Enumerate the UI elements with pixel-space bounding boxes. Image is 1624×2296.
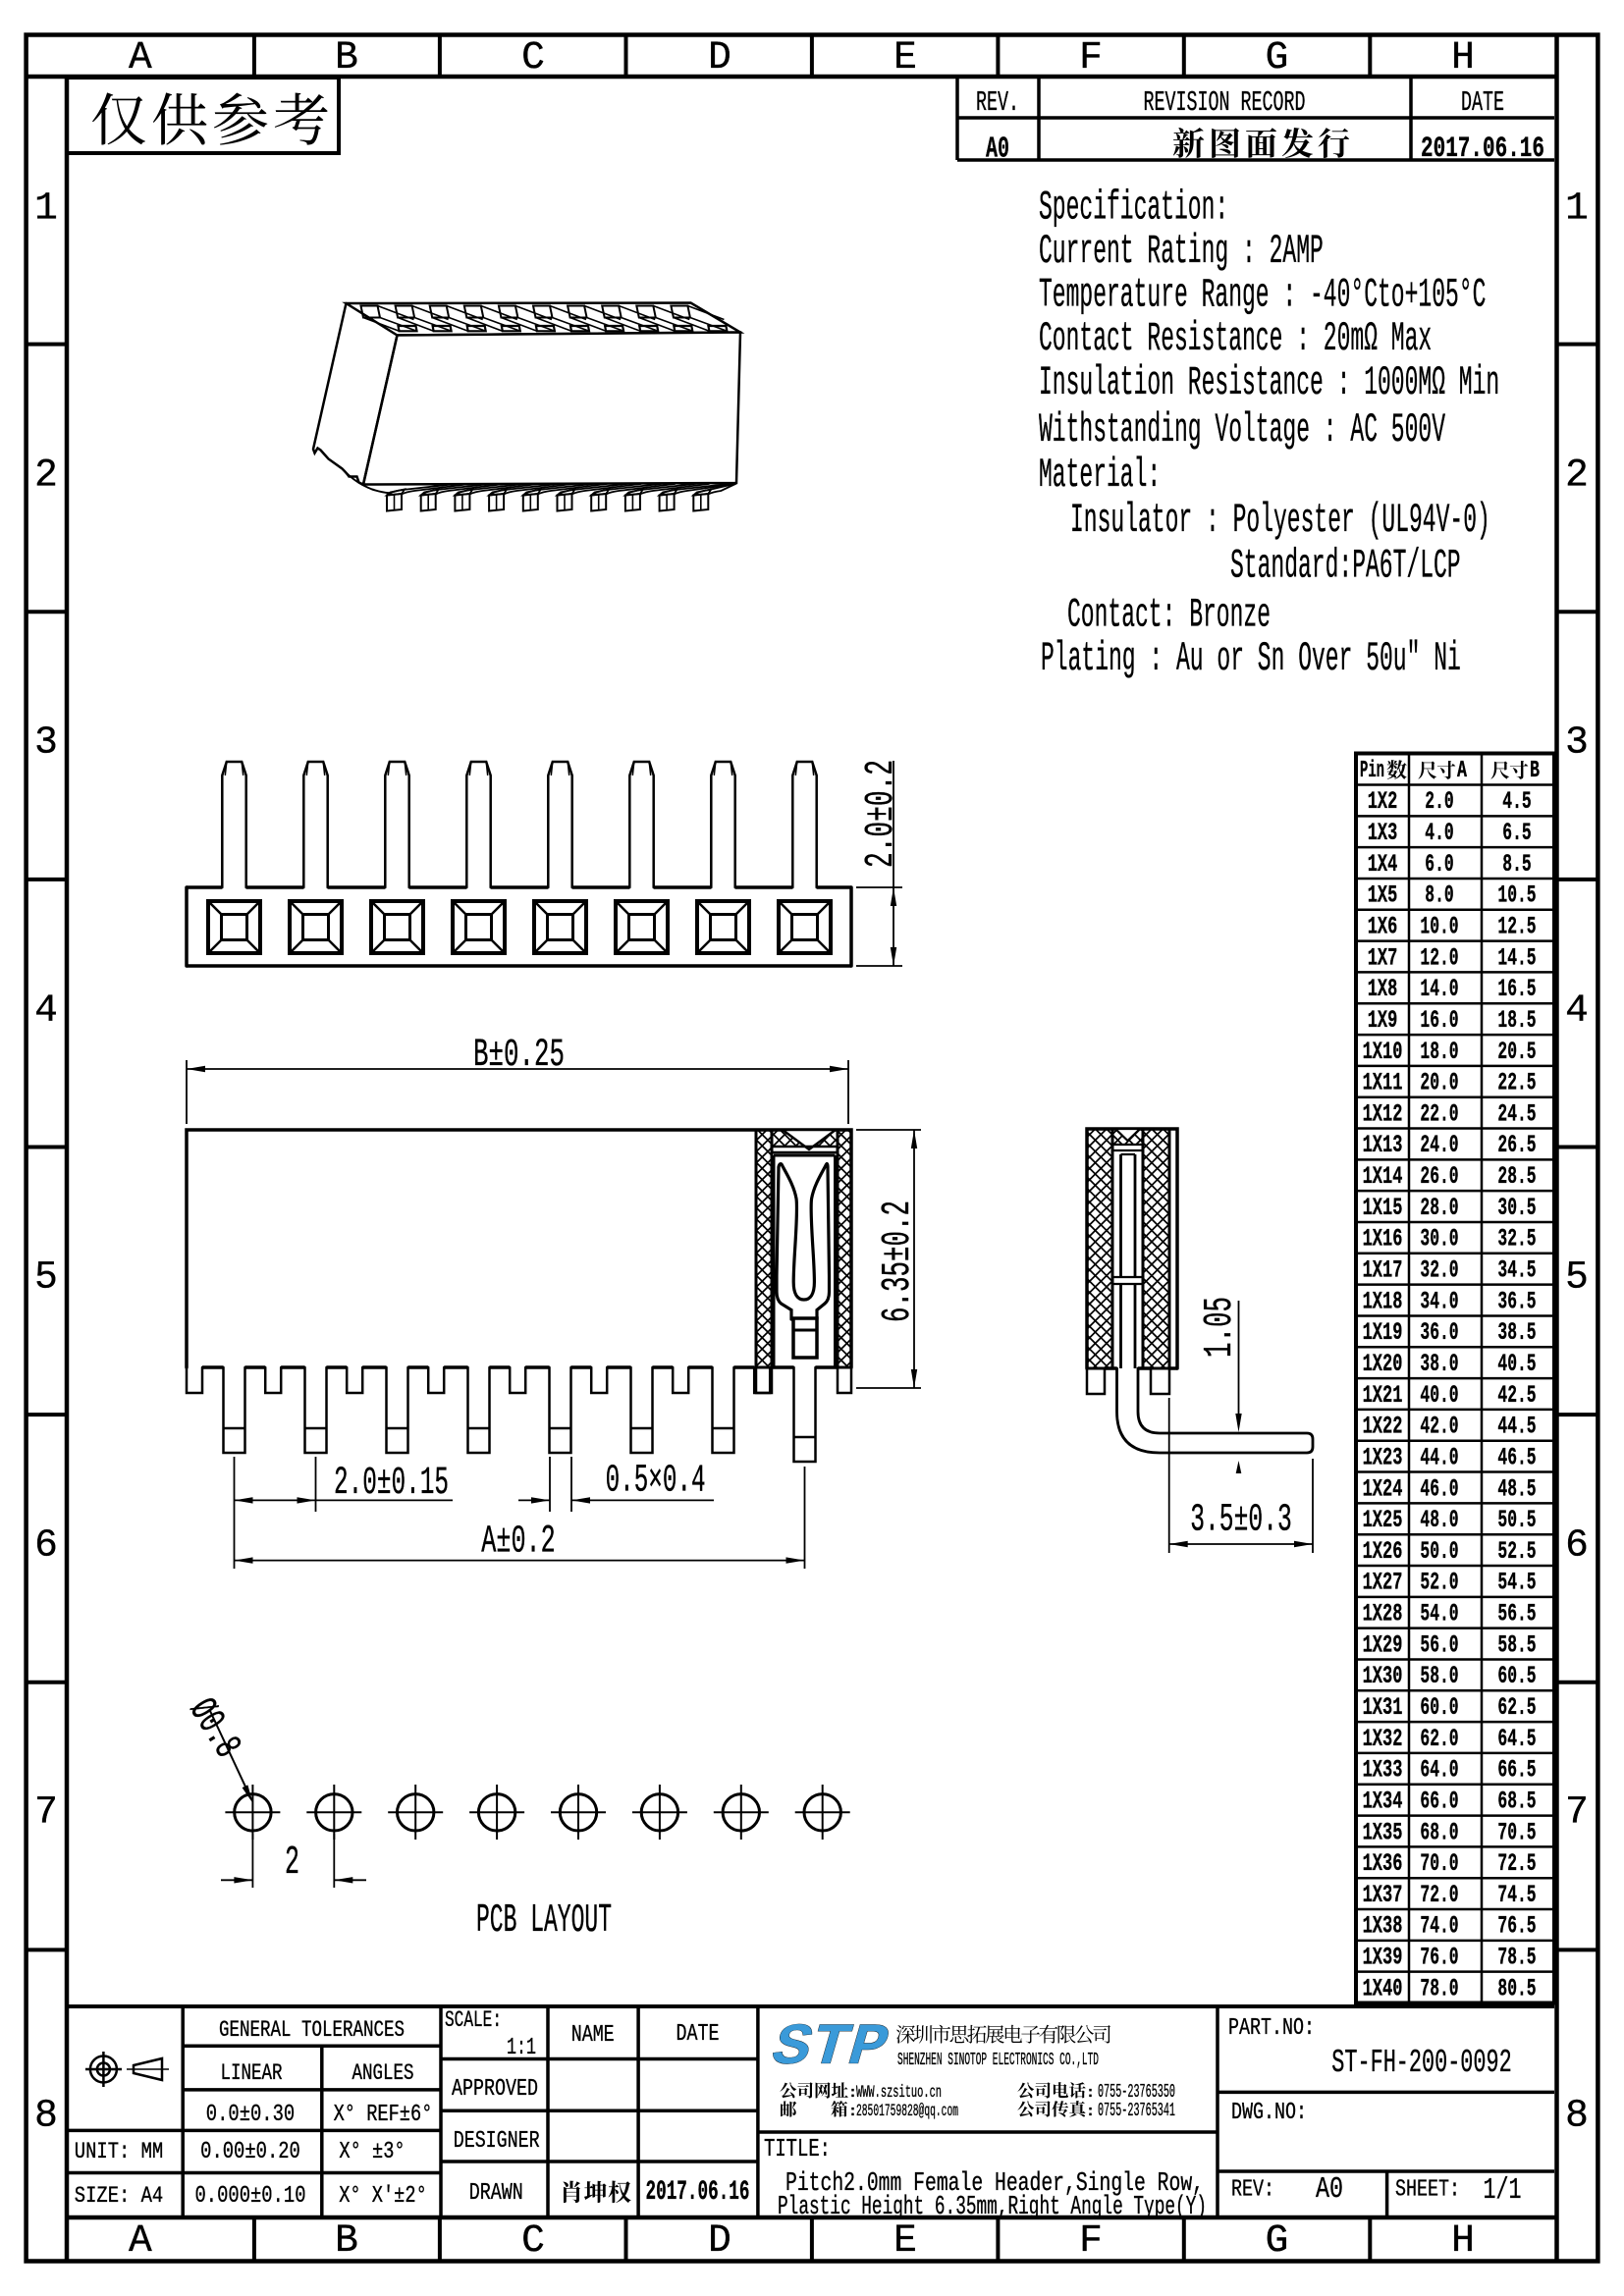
svg-text:SHEET:: SHEET: xyxy=(1395,2177,1460,2204)
svg-text:76.5: 76.5 xyxy=(1497,1912,1536,1941)
svg-text:DWG.NO:: DWG.NO: xyxy=(1231,2100,1307,2126)
svg-text:DATE: DATE xyxy=(677,2021,720,2048)
svg-text:UNIT: MM: UNIT: MM xyxy=(75,2139,163,2164)
svg-text:A: A xyxy=(129,2218,152,2263)
svg-text:6.0: 6.0 xyxy=(1425,850,1453,879)
svg-text:1X13: 1X13 xyxy=(1363,1131,1403,1159)
svg-text::: : xyxy=(1086,2085,1095,2102)
svg-text:1X32: 1X32 xyxy=(1363,1725,1403,1753)
svg-text:22.0: 22.0 xyxy=(1420,1099,1458,1128)
svg-text:Contact: Bronze: Contact: Bronze xyxy=(1067,592,1271,639)
svg-text:50.0: 50.0 xyxy=(1420,1537,1458,1566)
svg-text:38.5: 38.5 xyxy=(1497,1318,1536,1347)
svg-text:18.0: 18.0 xyxy=(1420,1038,1458,1066)
svg-text:X° REF±6°: X° REF±6° xyxy=(334,2102,433,2128)
svg-text:10.0: 10.0 xyxy=(1420,912,1458,940)
svg-text:A: A xyxy=(129,35,152,80)
svg-text:SHENZHEN SINOTOP ELECTRONICS C: SHENZHEN SINOTOP ELECTRONICS CO.,LTD xyxy=(897,2051,1099,2070)
svg-text:REV.: REV. xyxy=(976,86,1019,119)
svg-text:1.05: 1.05 xyxy=(1198,1297,1243,1358)
svg-text:WWW.szsituo.cn: WWW.szsituo.cn xyxy=(856,2083,942,2103)
svg-text:1X31: 1X31 xyxy=(1363,1693,1403,1722)
svg-text:24.0: 24.0 xyxy=(1420,1131,1458,1159)
svg-text:A0: A0 xyxy=(1316,2173,1343,2207)
svg-text:46.5: 46.5 xyxy=(1497,1443,1536,1471)
svg-text:60.5: 60.5 xyxy=(1497,1662,1536,1690)
svg-text:Contact Resistance : 20mΩ Max: Contact Resistance : 20mΩ Max xyxy=(1039,315,1432,362)
svg-text:62.0: 62.0 xyxy=(1420,1725,1458,1753)
svg-text:44.5: 44.5 xyxy=(1497,1413,1536,1441)
svg-text:DATE: DATE xyxy=(1461,86,1504,119)
svg-text:74.5: 74.5 xyxy=(1497,1881,1536,1909)
svg-text:0.000±0.10: 0.000±0.10 xyxy=(195,2183,306,2210)
svg-text:20.0: 20.0 xyxy=(1420,1069,1458,1097)
svg-text:2017.06.16: 2017.06.16 xyxy=(646,2177,750,2208)
svg-text:ST-FH-200-0092: ST-FH-200-0092 xyxy=(1331,2045,1511,2082)
svg-text:1X40: 1X40 xyxy=(1363,1974,1403,2002)
svg-text:D: D xyxy=(708,35,731,80)
svg-text:62.5: 62.5 xyxy=(1497,1693,1536,1722)
svg-text:1X19: 1X19 xyxy=(1363,1318,1403,1347)
svg-text:1X11: 1X11 xyxy=(1363,1069,1403,1097)
svg-text:DESIGNER: DESIGNER xyxy=(454,2128,540,2155)
svg-text:REV:: REV: xyxy=(1231,2177,1274,2204)
svg-text:1X24: 1X24 xyxy=(1363,1474,1403,1503)
svg-text:Withstanding Voltage : AC 500V: Withstanding Voltage : AC 500V xyxy=(1039,406,1445,454)
svg-text:58.0: 58.0 xyxy=(1420,1662,1458,1690)
svg-text:1X23: 1X23 xyxy=(1363,1443,1403,1471)
svg-text:H: H xyxy=(1451,35,1475,80)
svg-text:72.0: 72.0 xyxy=(1420,1881,1458,1909)
svg-text:B±0.25: B±0.25 xyxy=(473,1033,565,1077)
svg-text:ANGLES: ANGLES xyxy=(352,2060,414,2087)
svg-text:4.0: 4.0 xyxy=(1425,819,1453,847)
svg-text:1X17: 1X17 xyxy=(1363,1256,1403,1285)
svg-text:DRAWN: DRAWN xyxy=(469,2180,523,2207)
svg-text:1X6: 1X6 xyxy=(1368,912,1398,940)
svg-text:G: G xyxy=(1266,2218,1289,2263)
svg-text:28.5: 28.5 xyxy=(1497,1162,1536,1191)
svg-text:5: 5 xyxy=(34,1255,58,1300)
svg-text:10.5: 10.5 xyxy=(1497,881,1536,910)
svg-text:4: 4 xyxy=(34,988,58,1033)
svg-text:8.0: 8.0 xyxy=(1425,881,1453,910)
svg-text:78.5: 78.5 xyxy=(1497,1944,1536,1972)
svg-text:PCB LAYOUT: PCB LAYOUT xyxy=(476,1898,612,1944)
svg-text:66.0: 66.0 xyxy=(1420,1787,1458,1815)
svg-text:3: 3 xyxy=(1565,721,1589,765)
svg-text:H: H xyxy=(1451,2218,1475,2263)
svg-text:2.0±0.2: 2.0±0.2 xyxy=(859,760,904,868)
svg-text:E: E xyxy=(893,2218,917,2263)
svg-text:72.5: 72.5 xyxy=(1497,1849,1536,1878)
svg-text:14.0: 14.0 xyxy=(1420,975,1458,1003)
svg-text:30.0: 30.0 xyxy=(1420,1225,1458,1254)
svg-text:1X18: 1X18 xyxy=(1363,1287,1403,1315)
svg-text:4.5: 4.5 xyxy=(1502,787,1531,816)
svg-text:80.5: 80.5 xyxy=(1497,1974,1536,2002)
svg-text:1X20: 1X20 xyxy=(1363,1350,1403,1378)
svg-text:1X36: 1X36 xyxy=(1363,1849,1403,1878)
svg-text:1X15: 1X15 xyxy=(1363,1194,1403,1222)
svg-text:STP: STP xyxy=(764,2015,896,2082)
svg-text:8: 8 xyxy=(34,2094,58,2138)
svg-text:1X25: 1X25 xyxy=(1363,1506,1403,1534)
svg-text:0.0±0.30: 0.0±0.30 xyxy=(206,2102,295,2128)
svg-text:38.0: 38.0 xyxy=(1420,1350,1458,1378)
svg-text:6.5: 6.5 xyxy=(1502,819,1531,847)
svg-text:Current Rating : 2AMP: Current Rating : 2AMP xyxy=(1039,228,1324,275)
svg-text:Temperature Range : -40°Cto+10: Temperature Range : -40°Cto+105°C xyxy=(1039,272,1486,319)
svg-text:30.5: 30.5 xyxy=(1497,1194,1536,1222)
svg-text:70.0: 70.0 xyxy=(1420,1849,1458,1878)
svg-text:0.00±0.20: 0.00±0.20 xyxy=(200,2139,300,2165)
svg-text:X° X'±2°: X° X'±2° xyxy=(339,2183,427,2210)
svg-text:B: B xyxy=(335,2218,358,2263)
svg-text:0.5×0.4: 0.5×0.4 xyxy=(606,1459,706,1503)
svg-text:7: 7 xyxy=(1565,1790,1589,1835)
svg-text:A: A xyxy=(1457,758,1467,784)
svg-text:52.0: 52.0 xyxy=(1420,1569,1458,1597)
svg-text:1X35: 1X35 xyxy=(1363,1818,1403,1846)
svg-text:X° ±3°: X° ±3° xyxy=(339,2139,405,2165)
svg-text:54.5: 54.5 xyxy=(1497,1569,1536,1597)
svg-text:1: 1 xyxy=(34,187,58,231)
svg-text:26.0: 26.0 xyxy=(1420,1162,1458,1191)
svg-text:1X30: 1X30 xyxy=(1363,1662,1403,1690)
svg-text:54.0: 54.0 xyxy=(1420,1600,1458,1629)
svg-text:4: 4 xyxy=(1565,988,1589,1033)
svg-text:28501759828@qq.com: 28501759828@qq.com xyxy=(856,2102,958,2121)
svg-text:D: D xyxy=(708,2218,731,2263)
svg-text:70.5: 70.5 xyxy=(1497,1818,1536,1846)
svg-text:F: F xyxy=(1079,35,1103,80)
svg-text:36.5: 36.5 xyxy=(1497,1287,1536,1315)
svg-text:G: G xyxy=(1266,35,1289,80)
svg-text:2.0: 2.0 xyxy=(1425,787,1453,816)
svg-text:48.0: 48.0 xyxy=(1420,1506,1458,1534)
svg-text:1/1: 1/1 xyxy=(1484,2174,1522,2208)
svg-text:16.5: 16.5 xyxy=(1497,975,1536,1003)
svg-text:12.0: 12.0 xyxy=(1420,943,1458,972)
svg-text:APPROVED: APPROVED xyxy=(452,2076,538,2103)
svg-text:Pin: Pin xyxy=(1360,758,1384,784)
svg-text:1X22: 1X22 xyxy=(1363,1413,1403,1441)
svg-text:3: 3 xyxy=(34,721,58,765)
svg-text:LINEAR: LINEAR xyxy=(221,2060,283,2087)
svg-text:2: 2 xyxy=(34,454,58,498)
svg-text:18.5: 18.5 xyxy=(1497,1006,1536,1035)
svg-text:78.0: 78.0 xyxy=(1420,1974,1458,2002)
svg-text:E: E xyxy=(893,35,917,80)
svg-text:56.5: 56.5 xyxy=(1497,1600,1536,1629)
svg-text:1X34: 1X34 xyxy=(1363,1787,1403,1815)
svg-text:22.5: 22.5 xyxy=(1497,1069,1536,1097)
svg-text:2017.06.16: 2017.06.16 xyxy=(1421,132,1544,165)
svg-text:20.5: 20.5 xyxy=(1497,1038,1536,1066)
svg-text:8.5: 8.5 xyxy=(1502,850,1531,879)
svg-text:32.5: 32.5 xyxy=(1497,1225,1536,1254)
svg-text:1X28: 1X28 xyxy=(1363,1600,1403,1629)
svg-text:8: 8 xyxy=(1565,2094,1589,2138)
svg-text:34.5: 34.5 xyxy=(1497,1256,1536,1285)
svg-text:40.0: 40.0 xyxy=(1420,1381,1458,1410)
svg-text:Material:: Material: xyxy=(1039,452,1161,499)
svg-text:1:1: 1:1 xyxy=(507,2035,536,2061)
svg-text:36.0: 36.0 xyxy=(1420,1318,1458,1347)
svg-text:PART.NO:: PART.NO: xyxy=(1228,2015,1315,2042)
svg-text:1X29: 1X29 xyxy=(1363,1630,1403,1659)
svg-text:1X16: 1X16 xyxy=(1363,1225,1403,1254)
svg-text:1X9: 1X9 xyxy=(1368,1006,1398,1035)
svg-text:F: F xyxy=(1079,2218,1103,2263)
svg-text:34.0: 34.0 xyxy=(1420,1287,1458,1315)
svg-text:TITLE:: TITLE: xyxy=(764,2135,831,2163)
svg-text:42.5: 42.5 xyxy=(1497,1381,1536,1410)
svg-text:Plating : Au or Sn Over 50u″ N: Plating : Au or Sn Over 50u″ Ni xyxy=(1041,635,1461,682)
svg-text:C: C xyxy=(521,2218,545,2263)
svg-text:1: 1 xyxy=(1565,187,1589,231)
svg-text:46.0: 46.0 xyxy=(1420,1474,1458,1503)
svg-text:2.0±0.15: 2.0±0.15 xyxy=(334,1461,449,1505)
svg-text:58.5: 58.5 xyxy=(1497,1630,1536,1659)
svg-text:1X2: 1X2 xyxy=(1368,787,1398,816)
svg-text:1X39: 1X39 xyxy=(1363,1944,1403,1972)
svg-text:74.0: 74.0 xyxy=(1420,1912,1458,1941)
svg-text:C: C xyxy=(521,35,545,80)
svg-text:76.0: 76.0 xyxy=(1420,1944,1458,1972)
svg-text:2: 2 xyxy=(285,1841,299,1886)
svg-text:1X21: 1X21 xyxy=(1363,1381,1403,1410)
svg-text:28.0: 28.0 xyxy=(1420,1194,1458,1222)
svg-text:40.5: 40.5 xyxy=(1497,1350,1536,1378)
svg-text:0755-23765341: 0755-23765341 xyxy=(1098,2100,1175,2121)
svg-text:42.0: 42.0 xyxy=(1420,1413,1458,1441)
svg-text:6: 6 xyxy=(1565,1523,1589,1568)
svg-text:52.5: 52.5 xyxy=(1497,1537,1536,1566)
svg-text:Insulation Resistance : 1000MΩ: Insulation Resistance : 1000MΩ Min xyxy=(1039,359,1499,406)
svg-text:66.5: 66.5 xyxy=(1497,1756,1536,1785)
svg-text:1X7: 1X7 xyxy=(1368,943,1398,972)
svg-text:14.5: 14.5 xyxy=(1497,943,1536,972)
svg-text:SIZE: A4: SIZE: A4 xyxy=(75,2183,163,2209)
svg-text:SCALE:: SCALE: xyxy=(445,2007,502,2033)
svg-text:50.5: 50.5 xyxy=(1497,1506,1536,1534)
svg-text:Plastic Height 6.35mm,Right An: Plastic Height 6.35mm,Right Angle Type(Y… xyxy=(778,2192,1207,2221)
svg-text:32.0: 32.0 xyxy=(1420,1256,1458,1285)
svg-text:REVISION RECORD: REVISION RECORD xyxy=(1144,86,1306,119)
svg-text:3.5±0.3: 3.5±0.3 xyxy=(1190,1498,1292,1542)
svg-text:48.5: 48.5 xyxy=(1497,1474,1536,1503)
svg-text:B: B xyxy=(335,35,358,80)
svg-text:1X33: 1X33 xyxy=(1363,1756,1403,1785)
svg-text:6.35±0.2: 6.35±0.2 xyxy=(876,1201,921,1322)
svg-text:2: 2 xyxy=(1565,454,1589,498)
svg-text:1X37: 1X37 xyxy=(1363,1881,1403,1909)
svg-text:Insulator : Polyester (UL94V-0: Insulator : Polyester (UL94V-0) xyxy=(1070,497,1490,544)
svg-text:26.5: 26.5 xyxy=(1497,1131,1536,1159)
svg-text:1X14: 1X14 xyxy=(1363,1162,1403,1191)
svg-text:1X5: 1X5 xyxy=(1368,881,1398,910)
svg-text:1X27: 1X27 xyxy=(1363,1569,1403,1597)
svg-text:1X12: 1X12 xyxy=(1363,1099,1403,1128)
svg-text:64.5: 64.5 xyxy=(1497,1725,1536,1753)
svg-text::: : xyxy=(1086,2104,1095,2120)
svg-text:Specification:: Specification: xyxy=(1039,185,1228,232)
svg-text:68.0: 68.0 xyxy=(1420,1818,1458,1846)
svg-text:7: 7 xyxy=(34,1790,58,1835)
svg-text:1X8: 1X8 xyxy=(1368,975,1398,1003)
svg-text:12.5: 12.5 xyxy=(1497,912,1536,940)
svg-text:Standard:PA6T/LCP: Standard:PA6T/LCP xyxy=(1230,543,1461,590)
svg-text:60.0: 60.0 xyxy=(1420,1693,1458,1722)
svg-text:1X10: 1X10 xyxy=(1363,1038,1403,1066)
svg-text:1X38: 1X38 xyxy=(1363,1912,1403,1941)
svg-text:68.5: 68.5 xyxy=(1497,1787,1536,1815)
svg-text:B: B xyxy=(1530,758,1540,784)
svg-text:1X3: 1X3 xyxy=(1368,819,1398,847)
svg-text:64.0: 64.0 xyxy=(1420,1756,1458,1785)
svg-text:A0: A0 xyxy=(986,133,1009,167)
svg-text:24.5: 24.5 xyxy=(1497,1099,1536,1128)
svg-text:5: 5 xyxy=(1565,1255,1589,1300)
svg-text:NAME: NAME xyxy=(571,2022,615,2049)
svg-text:6: 6 xyxy=(34,1523,58,1568)
svg-text:A±0.2: A±0.2 xyxy=(481,1520,556,1564)
svg-text:GENERAL TOLERANCES: GENERAL TOLERANCES xyxy=(219,2017,405,2043)
svg-text:56.0: 56.0 xyxy=(1420,1630,1458,1659)
svg-text:1X26: 1X26 xyxy=(1363,1537,1403,1566)
svg-text:1X4: 1X4 xyxy=(1368,850,1398,879)
svg-text:16.0: 16.0 xyxy=(1420,1006,1458,1035)
svg-text:44.0: 44.0 xyxy=(1420,1443,1458,1471)
